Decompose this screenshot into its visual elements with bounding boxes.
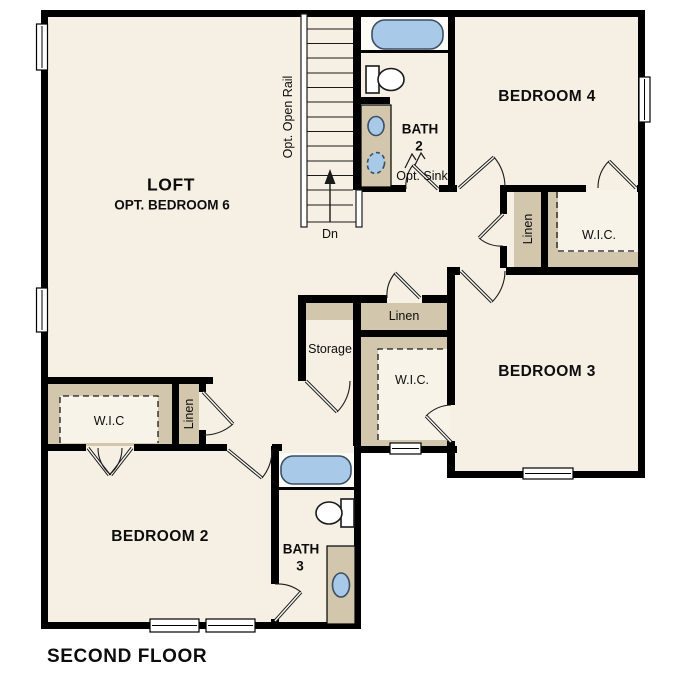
wic-bedroom2-label: W.I.C bbox=[94, 414, 125, 428]
opt-open-rail-label: Opt. Open Rail bbox=[281, 76, 295, 159]
wic-bedroom3-label: W.I.C. bbox=[395, 373, 429, 387]
window-symbol bbox=[206, 619, 255, 632]
window-symbol bbox=[390, 443, 421, 454]
stair-rail-left bbox=[301, 14, 307, 227]
wic-bedroom4-label: W.I.C. bbox=[582, 228, 616, 242]
loft-option-label: OPT. BEDROOM 6 bbox=[114, 198, 230, 213]
linen-hall-label: Linen bbox=[521, 214, 535, 245]
second-floor-plan: LOFT OPT. BEDROOM 6 BEDROOM 4 BEDROOM 3 … bbox=[0, 0, 687, 687]
bath3-label: BATH bbox=[283, 542, 320, 557]
linen-central-label: Linen bbox=[389, 309, 420, 323]
bedroom3-label: BEDROOM 3 bbox=[498, 363, 595, 381]
window-symbol bbox=[37, 24, 48, 70]
window-symbol bbox=[150, 619, 199, 632]
stairs-down-label: Dn bbox=[322, 227, 338, 241]
bathtub-icon bbox=[281, 456, 351, 484]
window-symbol bbox=[37, 288, 48, 332]
bedroom2-label: BEDROOM 2 bbox=[111, 528, 208, 546]
stair-rail-right bbox=[356, 190, 362, 227]
window-symbol bbox=[639, 77, 650, 122]
bath2-number: 2 bbox=[415, 139, 423, 154]
sink-icon bbox=[333, 573, 350, 597]
bedroom4-label: BEDROOM 4 bbox=[498, 88, 595, 106]
storage-label: Storage bbox=[308, 342, 352, 356]
opt-sink-label: Opt. Sink bbox=[396, 169, 447, 183]
toilet-icon bbox=[316, 499, 354, 527]
bath3-number: 3 bbox=[296, 559, 304, 574]
plan-title: SECOND FLOOR bbox=[47, 646, 207, 668]
bathtub-icon bbox=[372, 20, 443, 49]
window-symbol bbox=[523, 468, 573, 479]
linen-bedroom2-label: Linen bbox=[182, 399, 196, 430]
sink-icon bbox=[368, 117, 384, 136]
toilet-icon bbox=[366, 66, 404, 93]
loft-label: LOFT bbox=[147, 175, 195, 196]
bath2-label: BATH bbox=[402, 122, 439, 137]
